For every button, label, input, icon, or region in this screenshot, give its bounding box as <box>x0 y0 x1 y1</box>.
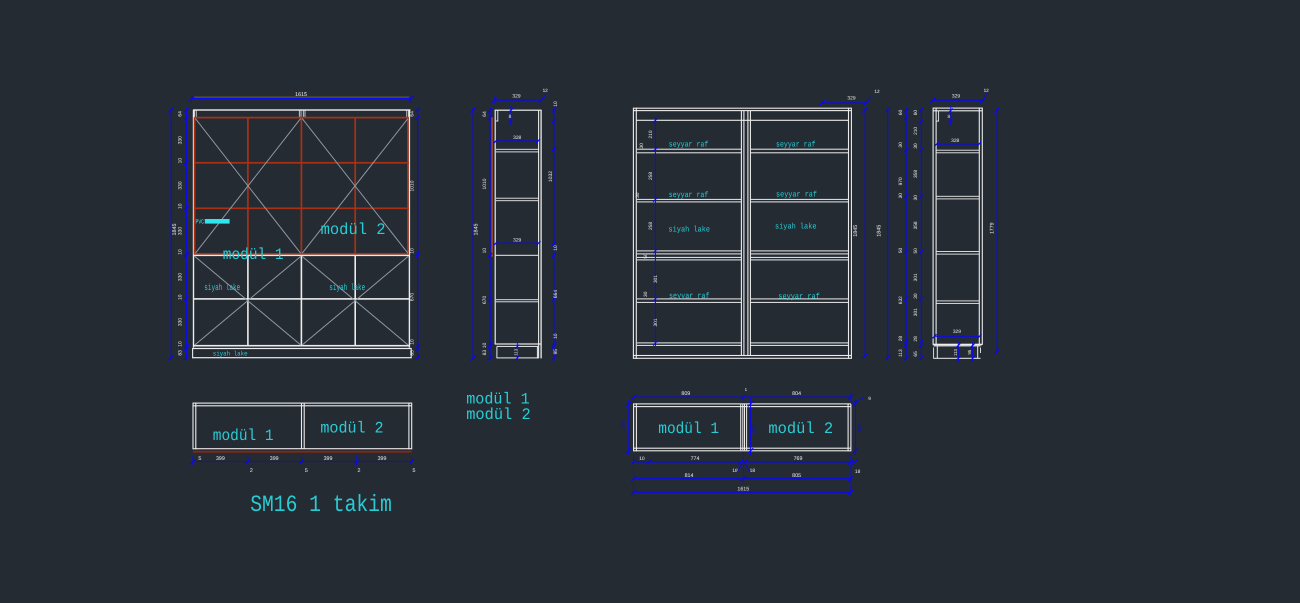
svg-text:814: 814 <box>685 473 694 479</box>
svg-text:18: 18 <box>750 468 756 474</box>
svg-text:siyah lake: siyah lake <box>775 222 817 231</box>
svg-text:632: 632 <box>898 296 904 304</box>
svg-text:330: 330 <box>178 318 184 326</box>
svg-text:113: 113 <box>898 349 904 357</box>
svg-text:30: 30 <box>639 143 645 149</box>
svg-text:10: 10 <box>553 333 559 339</box>
svg-text:769: 769 <box>794 456 803 462</box>
svg-text:329: 329 <box>953 329 961 335</box>
svg-text:seyyar raf: seyyar raf <box>776 191 817 200</box>
svg-text:328: 328 <box>513 135 521 141</box>
svg-text:83: 83 <box>482 350 488 356</box>
svg-text:399: 399 <box>378 456 387 462</box>
svg-text:seyyar raf: seyyar raf <box>669 292 710 301</box>
svg-text:670: 670 <box>482 296 488 304</box>
svg-text:30: 30 <box>913 293 919 299</box>
svg-text:805: 805 <box>792 473 801 479</box>
svg-text:siyah lake: siyah lake <box>213 350 248 357</box>
svg-text:329: 329 <box>751 425 757 434</box>
svg-text:301: 301 <box>913 273 919 281</box>
svg-text:8: 8 <box>509 114 512 120</box>
svg-text:113: 113 <box>513 348 518 356</box>
svg-text:330: 330 <box>178 273 184 281</box>
svg-text:10: 10 <box>178 249 184 255</box>
svg-text:1845: 1845 <box>172 224 178 236</box>
svg-text:85: 85 <box>409 350 415 356</box>
svg-text:28: 28 <box>913 336 919 342</box>
svg-text:modül 1: modül 1 <box>658 420 719 438</box>
svg-text:30: 30 <box>913 195 919 201</box>
svg-text:10: 10 <box>639 456 645 462</box>
svg-text:modül 2: modül 2 <box>768 420 833 438</box>
svg-text:329: 329 <box>847 96 855 102</box>
svg-text:siyah lake: siyah lake <box>669 225 711 234</box>
svg-text:301: 301 <box>653 318 659 326</box>
svg-text:10: 10 <box>553 101 559 107</box>
svg-text:modül 1: modül 1 <box>223 246 284 264</box>
svg-text:95: 95 <box>553 349 559 355</box>
svg-text:siyah lake: siyah lake <box>204 283 240 293</box>
svg-text:60: 60 <box>898 109 904 115</box>
svg-text:301: 301 <box>913 308 919 316</box>
svg-text:65: 65 <box>913 351 919 357</box>
svg-text:210: 210 <box>913 127 919 135</box>
svg-text:258: 258 <box>648 222 654 230</box>
svg-text:50: 50 <box>643 253 649 259</box>
svg-text:64: 64 <box>409 111 415 117</box>
svg-text:seyyar raf: seyyar raf <box>778 293 820 302</box>
svg-text:113: 113 <box>953 348 958 356</box>
svg-text:329: 329 <box>512 93 520 99</box>
svg-text:9: 9 <box>868 396 871 401</box>
svg-text:330: 330 <box>178 136 184 144</box>
svg-text:10: 10 <box>482 342 488 348</box>
svg-text:329: 329 <box>513 237 521 243</box>
svg-text:64: 64 <box>482 111 488 117</box>
svg-text:12: 12 <box>874 89 880 94</box>
svg-text:10: 10 <box>409 339 415 345</box>
svg-text:1845: 1845 <box>473 224 479 236</box>
svg-text:18: 18 <box>732 468 738 474</box>
svg-text:329: 329 <box>952 93 960 99</box>
svg-text:330: 330 <box>178 227 184 235</box>
svg-text:5: 5 <box>305 468 308 474</box>
svg-text:1010: 1010 <box>409 180 415 191</box>
svg-text:50: 50 <box>913 248 919 254</box>
svg-text:1010: 1010 <box>482 178 488 189</box>
svg-text:30: 30 <box>913 143 919 149</box>
svg-text:399: 399 <box>216 456 225 462</box>
svg-text:50: 50 <box>898 248 904 254</box>
svg-text:10: 10 <box>482 248 488 254</box>
svg-text:970: 970 <box>898 177 904 185</box>
svg-text:95: 95 <box>967 349 972 354</box>
svg-text:670: 670 <box>409 293 415 301</box>
svg-text:258: 258 <box>648 172 654 180</box>
svg-text:1779: 1779 <box>989 222 995 234</box>
svg-text:modül 2: modül 2 <box>320 419 383 437</box>
svg-text:30: 30 <box>898 193 904 199</box>
svg-text:5: 5 <box>413 468 416 474</box>
svg-text:1615: 1615 <box>295 92 307 98</box>
svg-text:10: 10 <box>178 341 184 347</box>
svg-text:12: 12 <box>543 88 549 93</box>
svg-text:809: 809 <box>681 391 690 397</box>
svg-text:330: 330 <box>178 181 184 189</box>
svg-text:329: 329 <box>620 421 626 430</box>
svg-text:358: 358 <box>913 170 919 178</box>
svg-text:10: 10 <box>409 248 415 254</box>
svg-text:301: 301 <box>653 275 659 283</box>
svg-text:18: 18 <box>855 469 861 475</box>
svg-text:30: 30 <box>898 142 904 148</box>
svg-text:10: 10 <box>178 203 184 209</box>
svg-text:774: 774 <box>691 456 700 462</box>
svg-text:modül 2: modül 2 <box>466 406 531 424</box>
svg-text:12: 12 <box>984 88 990 93</box>
svg-text:modül 1: modül 1 <box>213 427 274 445</box>
svg-text:10: 10 <box>553 245 559 251</box>
svg-text:399: 399 <box>324 456 333 462</box>
svg-text:2: 2 <box>250 468 253 474</box>
svg-text:8: 8 <box>947 114 950 119</box>
svg-text:28: 28 <box>898 336 904 342</box>
svg-text:329: 329 <box>857 423 863 432</box>
svg-text:83: 83 <box>178 350 184 356</box>
svg-text:30: 30 <box>643 291 649 297</box>
svg-text:10: 10 <box>178 294 184 300</box>
svg-text:30: 30 <box>635 192 641 198</box>
svg-text:399: 399 <box>270 456 279 462</box>
svg-text:SM16 1 takim: SM16 1 takim <box>250 493 392 519</box>
svg-text:modül 2: modül 2 <box>321 221 386 239</box>
svg-text:328: 328 <box>951 138 959 144</box>
svg-text:2: 2 <box>358 468 361 474</box>
svg-text:siyah lake: siyah lake <box>329 283 365 293</box>
svg-text:1845: 1845 <box>876 225 882 237</box>
svg-text:64: 64 <box>178 111 184 117</box>
svg-text:seyyar raf: seyyar raf <box>669 140 709 149</box>
svg-text:358: 358 <box>913 221 919 229</box>
svg-text:10: 10 <box>178 158 184 164</box>
svg-text:664: 664 <box>553 290 559 298</box>
svg-text:804: 804 <box>792 391 801 397</box>
svg-text:seyyar raf: seyyar raf <box>776 140 816 149</box>
svg-text:1615: 1615 <box>737 486 749 492</box>
svg-text:5: 5 <box>198 456 201 462</box>
svg-text:1032: 1032 <box>548 171 554 182</box>
svg-text:PVC: PVC <box>196 218 205 225</box>
svg-text:1845: 1845 <box>853 225 859 237</box>
svg-text:seyyar raf: seyyar raf <box>669 191 709 200</box>
svg-text:60: 60 <box>913 110 919 116</box>
svg-text:210: 210 <box>648 130 654 138</box>
